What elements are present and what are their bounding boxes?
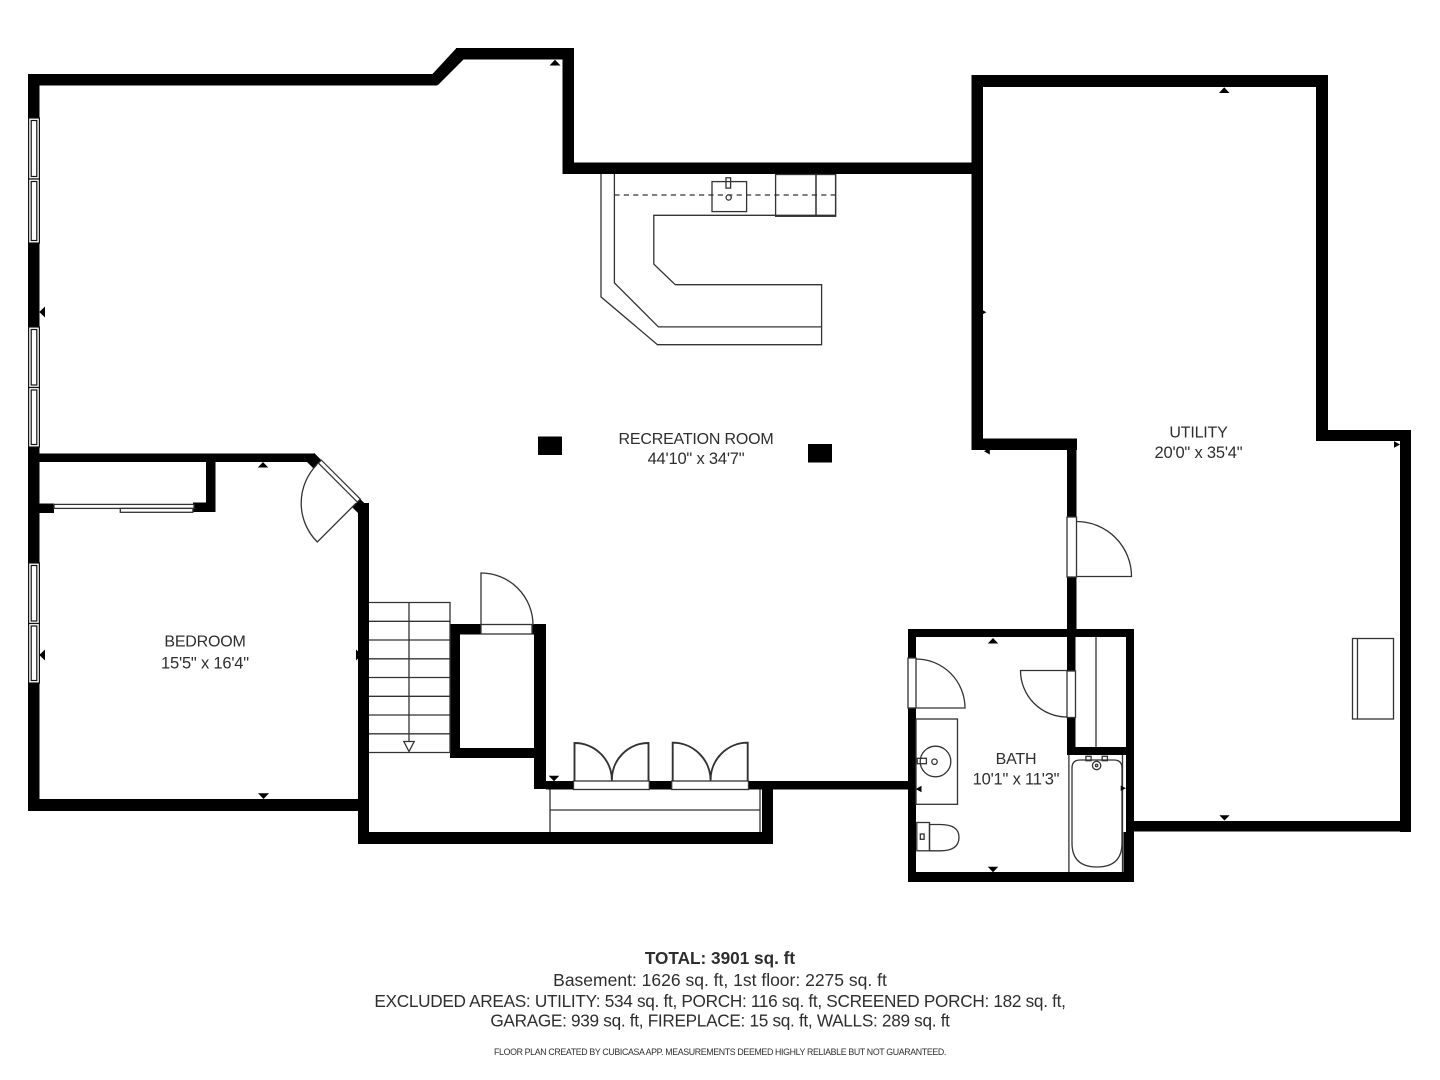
- svg-text:Basement: 1626 sq. ft, 1st flo: Basement: 1626 sq. ft, 1st floor: 2275 s…: [553, 970, 887, 990]
- svg-text:44'10" x 34'7": 44'10" x 34'7": [648, 450, 745, 468]
- svg-text:TOTAL: 3901 sq. ft: TOTAL: 3901 sq. ft: [645, 948, 796, 968]
- svg-text:UTILITY: UTILITY: [1169, 424, 1228, 441]
- svg-text:GARAGE: 939 sq. ft, FIREPLACE:: GARAGE: 939 sq. ft, FIREPLACE: 15 sq. ft…: [490, 1010, 950, 1030]
- svg-text:20'0" x 35'4": 20'0" x 35'4": [1155, 444, 1243, 462]
- svg-text:15'5" x 16'4": 15'5" x 16'4": [161, 654, 249, 672]
- svg-text:10'1" x 11'3": 10'1" x 11'3": [973, 770, 1060, 788]
- svg-text:BATH: BATH: [996, 751, 1037, 768]
- svg-text:BEDROOM: BEDROOM: [164, 634, 245, 651]
- svg-text:RECREATION ROOM: RECREATION ROOM: [619, 431, 774, 448]
- svg-text:EXCLUDED AREAS: UTILITY: 534 s: EXCLUDED AREAS: UTILITY: 534 sq. ft, POR…: [374, 991, 1065, 1011]
- svg-text:FLOOR PLAN CREATED BY CUBICASA: FLOOR PLAN CREATED BY CUBICASA APP. MEAS…: [494, 1047, 946, 1057]
